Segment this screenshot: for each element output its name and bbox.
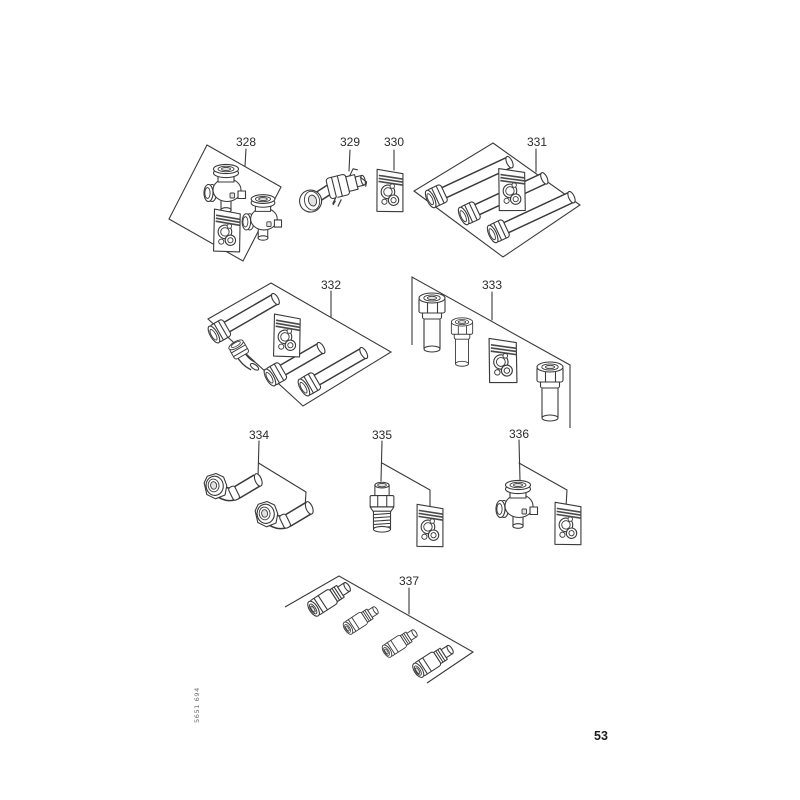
part-328-label: 328 <box>236 135 256 149</box>
page-number: 53 <box>594 729 608 743</box>
valve-illustration <box>242 195 281 241</box>
threaded-nipple-illustration <box>370 482 394 532</box>
parts-catalog-page: 328 329 330 331 332 333 334 335 336 337 … <box>0 0 800 800</box>
gasket-kit-illustration <box>553 502 583 545</box>
part-335-label: 335 <box>372 428 392 442</box>
valve-illustration <box>496 480 538 528</box>
part-328-illustration <box>204 164 282 253</box>
gasket-kit-illustration <box>497 169 526 212</box>
adapter-bolt-illustration <box>419 293 445 352</box>
part-330-label: 330 <box>384 135 404 149</box>
part-334-label: 334 <box>249 428 269 442</box>
gasket-kit-illustration <box>415 504 445 547</box>
part-337-illustration <box>305 579 456 680</box>
part-329-leader-line <box>349 150 350 171</box>
gasket-kit-illustration <box>272 314 303 358</box>
coupler-illustration <box>411 642 457 680</box>
part-336-illustration <box>496 480 583 545</box>
part-334-leader-line <box>258 441 306 508</box>
part-328-leader-line <box>245 149 246 166</box>
part-331-label: 331 <box>527 135 547 149</box>
adapter-bolt-illustration <box>537 362 563 421</box>
coupler-illustration <box>380 626 420 658</box>
parts-diagram-svg: 328 329 330 331 332 333 334 335 336 337 … <box>0 0 800 800</box>
coupler-illustration <box>341 603 381 635</box>
valve-illustration <box>204 164 246 212</box>
coupler-illustration <box>305 579 353 619</box>
part-337-outline <box>285 576 473 683</box>
gasket-kit-illustration <box>212 209 243 253</box>
document-number: 5651 694 <box>193 687 201 723</box>
gasket-kit-illustration <box>488 338 519 383</box>
adapter-bolt-illustration <box>451 318 472 366</box>
part-333-label: 333 <box>482 278 502 292</box>
part-334-illustration <box>203 467 316 533</box>
part-336-label: 336 <box>509 427 529 441</box>
part-333-illustration <box>419 293 563 421</box>
part-335-illustration <box>370 482 445 547</box>
part-331-illustration <box>423 152 578 244</box>
part-332-label: 332 <box>321 278 341 292</box>
part-337-label: 337 <box>399 574 419 588</box>
elbow-nut-illustration <box>227 338 259 371</box>
part-329-label: 329 <box>340 135 360 149</box>
elbow-pipe-illustration <box>254 495 316 533</box>
part-330-illustration <box>375 169 405 212</box>
part-329-illustration <box>295 166 371 214</box>
elbow-pipe-illustration <box>203 467 265 505</box>
